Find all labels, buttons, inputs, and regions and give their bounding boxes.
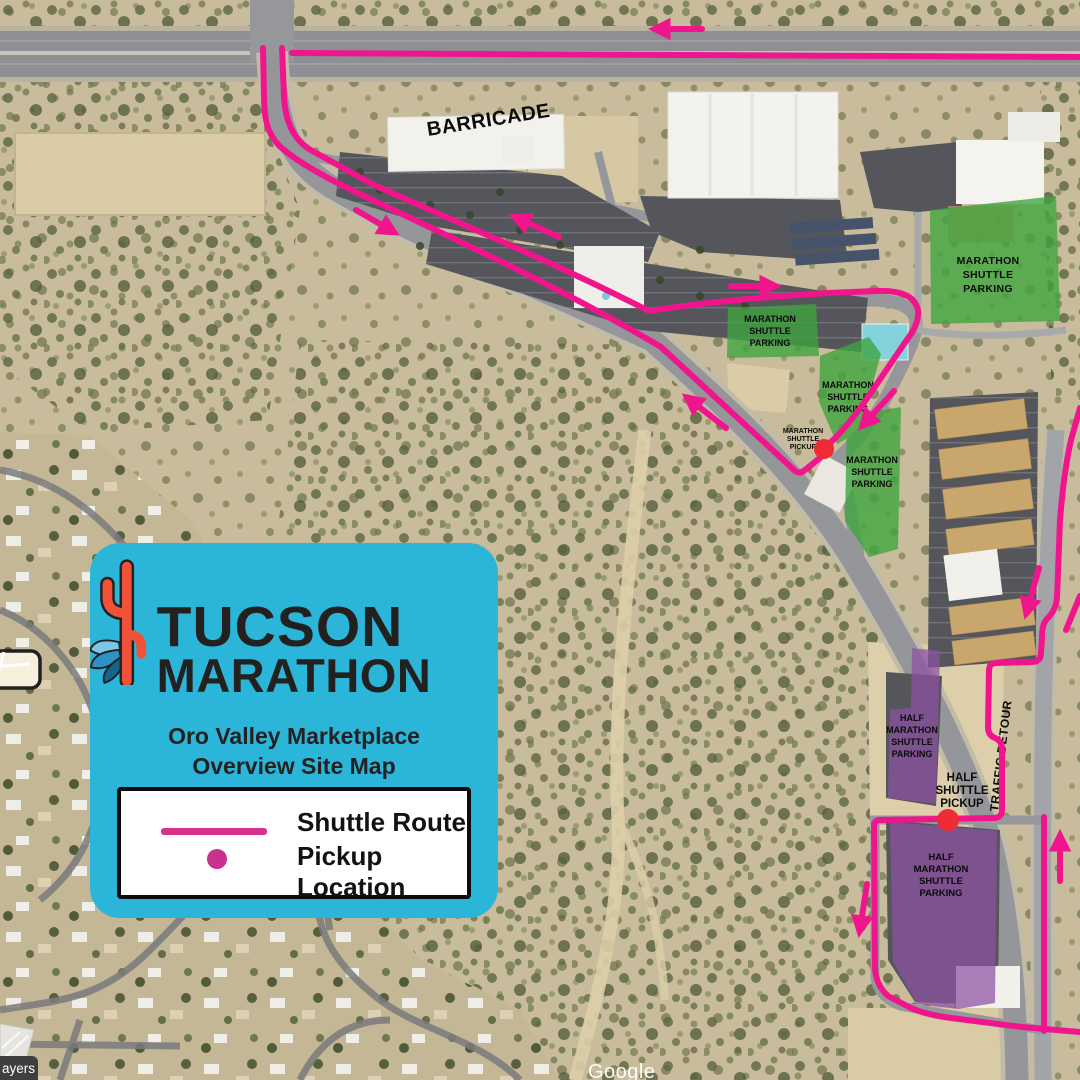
dirt-pad-northwest <box>15 133 265 215</box>
site-map-page: MARATHON SHUTTLE PARKING MARATHON SHUTTL… <box>0 0 1080 1080</box>
svg-text:PICKUP: PICKUP <box>940 798 984 810</box>
marathon-parking-label-1: MARATHON SHUTTLE PARKING <box>957 255 1020 295</box>
scrub-north-strip <box>0 0 1080 28</box>
half-pickup-dot <box>937 809 959 831</box>
solar-canopies <box>789 217 880 266</box>
svg-text:MARATHON: MARATHON <box>822 380 874 390</box>
svg-text:MARATHON: MARATHON <box>783 428 823 435</box>
svg-text:SHUTTLE: SHUTTLE <box>935 785 988 797</box>
half-parking-zone-2 <box>890 822 997 1009</box>
cactus-icon <box>90 549 152 685</box>
legend-pickup-label: Pickup Location <box>297 841 467 903</box>
svg-text:HALF: HALF <box>900 713 924 723</box>
brand-line-top: TUCSON <box>157 603 432 652</box>
svg-text:MARATHON: MARATHON <box>846 455 898 465</box>
brand-line-bottom: MARATHON <box>157 652 432 699</box>
svg-text:SHUTTLE: SHUTTLE <box>851 467 893 477</box>
satellite-map: MARATHON SHUTTLE PARKING MARATHON SHUTTL… <box>0 0 1080 1080</box>
svg-text:HALF: HALF <box>947 772 978 784</box>
google-attribution: Google <box>588 1061 656 1080</box>
svg-text:MARATHON: MARATHON <box>914 864 969 875</box>
legend-box: Shuttle Route Pickup Location <box>117 787 471 899</box>
pad-building <box>502 136 534 162</box>
svg-text:SHUTTLE: SHUTTLE <box>787 436 820 443</box>
svg-text:SHUTTLE: SHUTTLE <box>891 737 933 747</box>
svg-text:SHUTTLE: SHUTTLE <box>963 269 1014 281</box>
legend-pickup-swatch <box>207 849 227 869</box>
legend-route-swatch <box>161 828 267 835</box>
layers-label[interactable]: ayers <box>2 1061 35 1076</box>
svg-text:MARATHON: MARATHON <box>957 255 1020 267</box>
info-card: TUCSON MARATHON Oro Valley Marketplace O… <box>90 543 498 918</box>
card-title-line2: Overview Site Map <box>90 751 498 781</box>
legend-route-label: Shuttle Route <box>297 807 466 838</box>
tucson-marathon-logo: TUCSON MARATHON <box>90 543 498 699</box>
svg-text:MARATHON: MARATHON <box>886 725 938 735</box>
svg-text:SHUTTLE: SHUTTLE <box>749 326 791 336</box>
svg-text:PARKING: PARKING <box>963 283 1013 295</box>
northeast-building-2 <box>1008 112 1060 142</box>
svg-text:PARKING: PARKING <box>919 888 962 899</box>
svg-text:PARKING: PARKING <box>852 479 893 489</box>
svg-text:PARKING: PARKING <box>750 338 791 348</box>
svg-text:PARKING: PARKING <box>892 749 933 759</box>
marathon-parking-label-4: MARATHON SHUTTLE PARKING <box>846 455 898 489</box>
marathon-parking-label-2: MARATHON SHUTTLE PARKING <box>744 314 796 348</box>
northeast-building <box>956 140 1044 204</box>
card-title-line1: Oro Valley Marketplace <box>90 721 498 751</box>
marathon-pickup-dot <box>814 439 834 459</box>
svg-text:SHUTTLE: SHUTTLE <box>919 876 963 887</box>
brand-wordmark: TUCSON MARATHON <box>157 603 432 699</box>
shuttle-route-highway <box>292 53 1080 57</box>
card-title: Oro Valley Marketplace Overview Site Map <box>90 721 498 782</box>
svg-text:HALF: HALF <box>928 852 954 863</box>
svg-text:PICKUP: PICKUP <box>790 444 817 451</box>
map-inset-thumbnail[interactable] <box>0 651 40 688</box>
svg-text:MARATHON: MARATHON <box>744 314 796 324</box>
scrub-hill-northwest <box>0 78 300 432</box>
